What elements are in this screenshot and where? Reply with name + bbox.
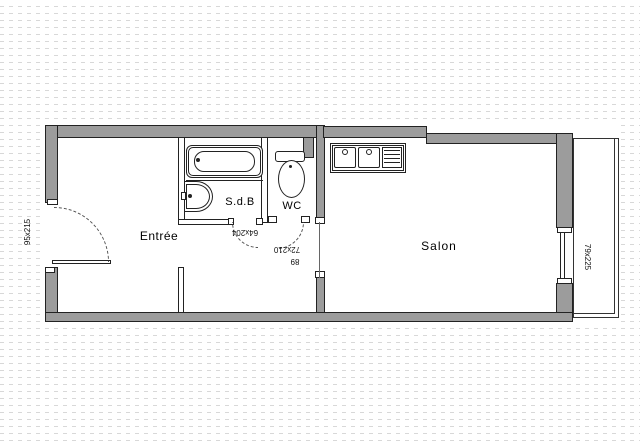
room-label-entree: Entrée [119,229,199,243]
room-label-sdb: S.d.B [210,195,270,208]
balcony-inner-line-right [614,138,615,314]
wall-salon-west-lower [316,277,325,313]
balcony-inner-line-bottom [573,313,615,314]
passage-threshold-line [319,222,320,278]
wall-top-salon-right [426,133,573,144]
dim-passage: 89 [287,256,303,266]
jamb-entry-top [47,199,58,205]
wall-left-upper [45,125,58,203]
jamb-wc-left [268,216,277,223]
balcony-outline [573,138,619,318]
washbasin-tap-icon [181,192,186,200]
sink-drainer-icon [382,147,402,168]
wall-bottom [45,312,573,322]
jamb-passage-top [315,217,325,224]
dim-window: 79x225 [582,235,592,279]
dim-sdb-door: 64x204 [228,227,262,237]
dim-wc-door: 72x210 [270,244,304,254]
window-glazing-line-outer [560,232,561,279]
wall-left-lower [45,267,58,313]
window-glazing-line-inner [564,232,565,279]
floor-plan-canvas: Entrée S.d.B WC Salon 95x215 64x204 72x2… [0,0,640,447]
dim-entry-door: 95x215 [23,210,33,254]
jamb-entry-bottom [45,267,55,273]
wall-right-upper [556,133,573,228]
partition-entree-hall [178,267,184,313]
sink-tap-left-icon [342,149,348,155]
jamb-wc-right [301,216,310,223]
partition-sdb-south [178,219,233,225]
bathtub-basin [194,151,255,172]
room-label-wc: WC [272,199,312,212]
jamb-passage-bottom [315,271,325,278]
wall-salon-west-upper [316,125,325,223]
wall-top-salon-left [323,126,427,138]
room-label-salon: Salon [399,239,479,253]
sink-tap-right-icon [366,149,372,155]
bathtub-drain-icon [196,158,200,162]
washbasin-drain-icon [188,194,192,198]
toilet-flush-icon [289,165,292,168]
